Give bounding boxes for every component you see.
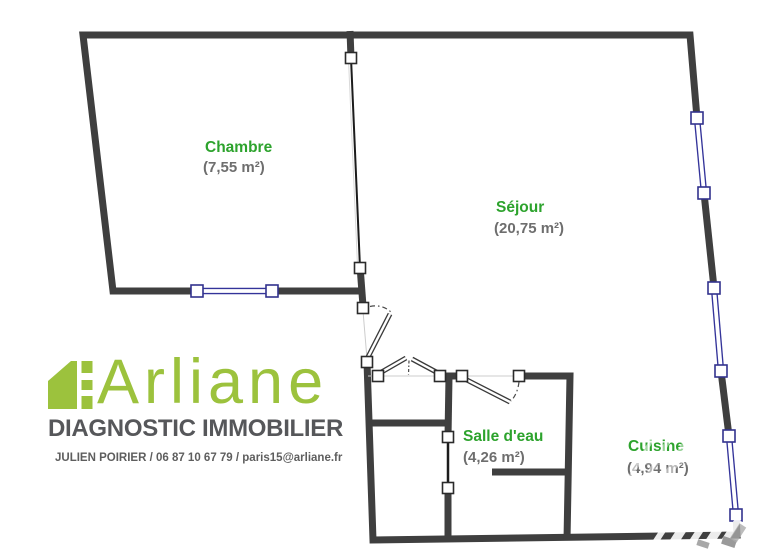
- junction-square: [362, 357, 373, 368]
- arliane-house-icon: [47, 360, 94, 411]
- window-square: [723, 430, 735, 442]
- logo-brand-text: Arliane: [97, 351, 328, 414]
- junction-square: [355, 263, 366, 274]
- junction-square: [435, 371, 446, 382]
- floorplan-page: Chambre (7,55 m²) Séjour (20,75 m²) Sall…: [0, 0, 767, 559]
- wall-exterior-right-seg1: [704, 193, 714, 288]
- wall-exterior-topleft: [83, 35, 697, 291]
- junction-square: [373, 371, 384, 382]
- junction-square: [443, 432, 454, 443]
- partition-line: [351, 58, 360, 268]
- window-square: [266, 285, 278, 297]
- window-square: [698, 187, 710, 199]
- room-label-chambre: Chambre: [205, 139, 273, 156]
- salledeau-door-swing: [511, 382, 519, 401]
- logo-contact-text: JULIEN POIRIER / 06 87 10 67 79 / paris1…: [55, 452, 342, 464]
- logo-tagline-text: DIAGNOSTIC IMMOBILIER: [48, 415, 343, 443]
- double-door-swing: [409, 361, 410, 375]
- room-area-salledeau: (4,26 m²): [463, 449, 525, 466]
- junction-square: [346, 53, 357, 64]
- room-label-cuisine: Cuisine: [628, 438, 684, 455]
- room-label-salledeau: Salle d'eau: [463, 428, 543, 445]
- room-area-chambre: (7,55 m²): [203, 159, 265, 176]
- room-label-sejour: Séjour: [496, 199, 544, 216]
- window-square: [191, 285, 203, 297]
- entrance-door-leaf-core: [367, 314, 390, 359]
- entrance-door-swing: [370, 306, 391, 312]
- wall-wc-right-upper: [448, 377, 449, 437]
- room-area-sejour: (20,75 m²): [494, 220, 564, 237]
- doors: [367, 306, 519, 402]
- window-square: [715, 365, 727, 377]
- wall-exterior-right-seg2: [721, 371, 729, 436]
- entrance-opening-line: [363, 311, 367, 359]
- floorplan-drawing: Chambre (7,55 m²) Séjour (20,75 m²) Sall…: [0, 0, 767, 559]
- junction-square: [358, 303, 369, 314]
- junction-square: [514, 371, 525, 382]
- junction-square: [443, 483, 454, 494]
- watermark-stripes-wall: [647, 517, 746, 554]
- salledeau-door-leaf-core: [463, 378, 510, 402]
- junction-square: [457, 371, 468, 382]
- window-square: [708, 282, 720, 294]
- window-square: [691, 112, 703, 124]
- wall-salledeau-right: [518, 376, 570, 540]
- partition-chambre-sejour: [349, 58, 361, 268]
